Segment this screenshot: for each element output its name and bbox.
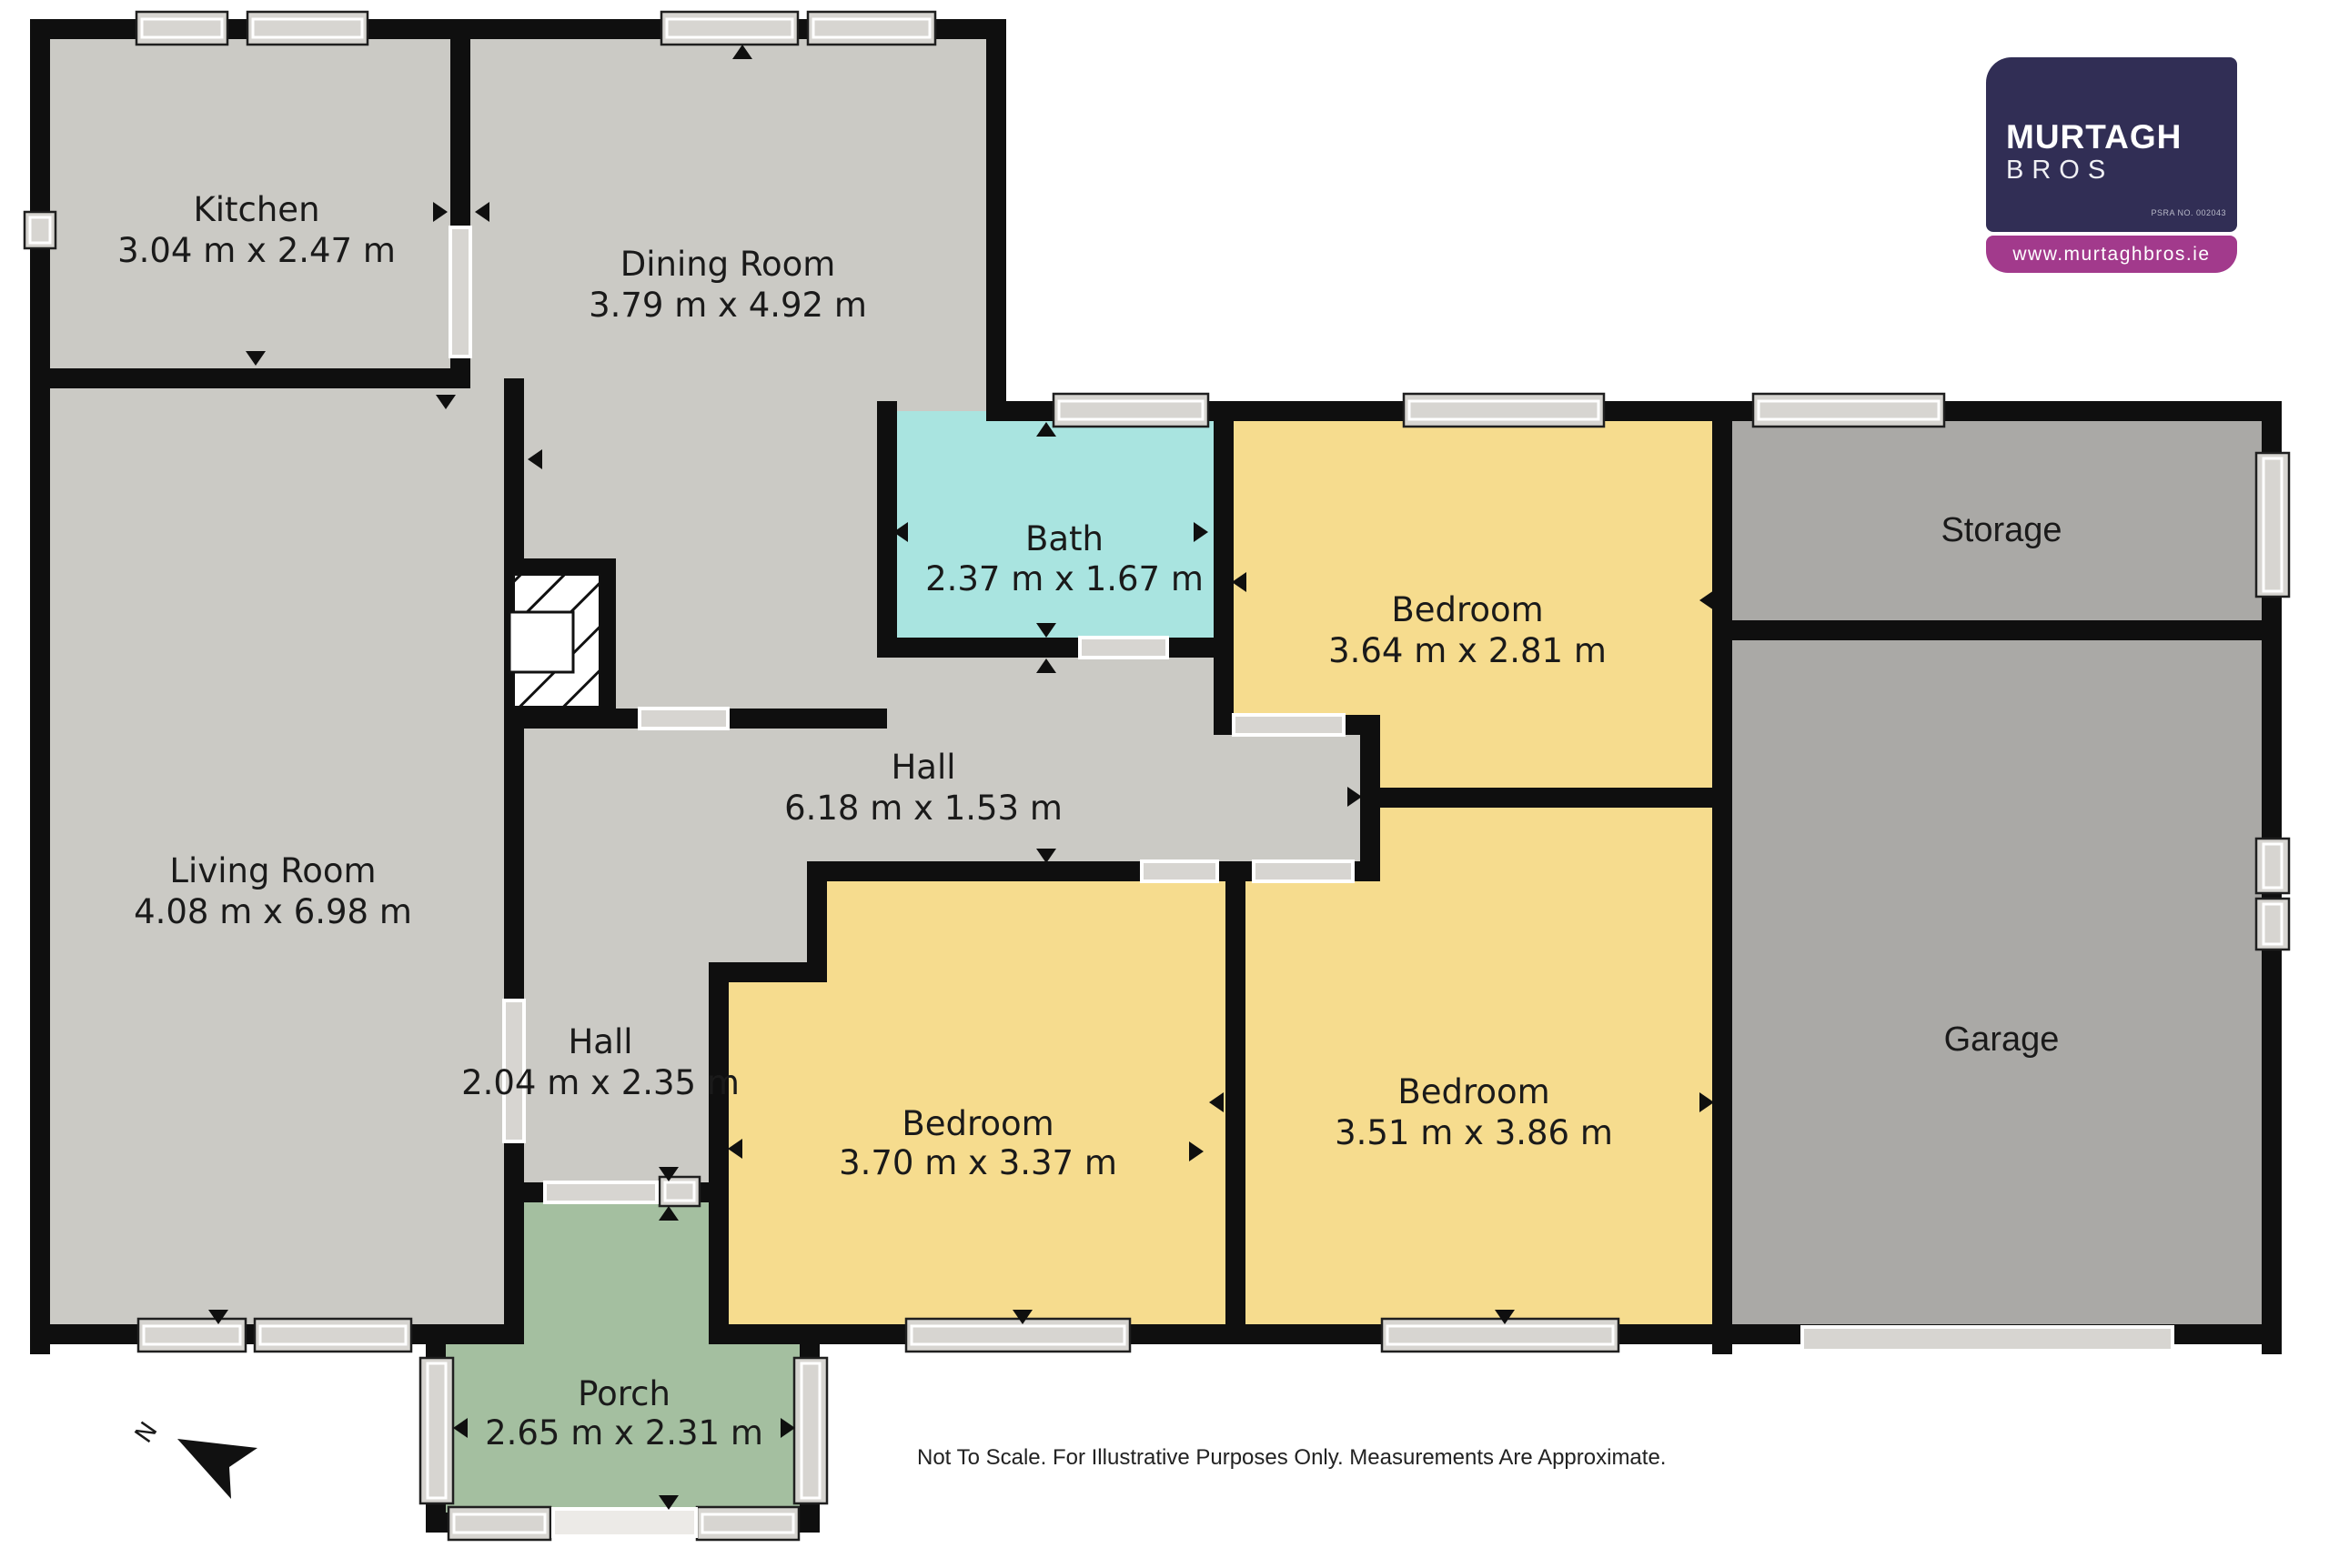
bedroom-middle-label: Bedroom	[902, 1104, 1054, 1143]
agency-logo: MURTAGH BROS PSRA NO. 002043 www.murtagh…	[1986, 57, 2237, 273]
hall-front-room	[514, 729, 719, 1192]
living-dims: 4.08 m x 6.98 m	[134, 892, 412, 931]
window	[136, 12, 227, 45]
window	[247, 12, 368, 45]
door-opening	[1254, 861, 1353, 881]
window	[2256, 899, 2289, 950]
storage-label: Storage	[1941, 511, 2062, 549]
bedroom-middle-dims: 3.70 m x 3.37 m	[839, 1143, 1117, 1182]
window	[449, 1507, 550, 1540]
window	[1382, 1319, 1618, 1352]
bath-dims: 2.37 m x 1.67 m	[925, 559, 1204, 598]
bath-label: Bath	[1025, 519, 1104, 558]
dining-label: Dining Room	[620, 245, 836, 284]
porch-door	[553, 1509, 696, 1536]
garage-door	[1802, 1327, 2173, 1351]
kitchen-label: Kitchen	[193, 190, 319, 229]
front-door	[545, 1182, 657, 1202]
bedroom-top-label: Bedroom	[1391, 590, 1543, 629]
window	[697, 1507, 799, 1540]
logo-name-line2: BROS	[1986, 154, 2237, 185]
door-opening	[1234, 715, 1344, 735]
hall-front-label: Hall	[568, 1022, 632, 1061]
logo-navy-panel: MURTAGH BROS PSRA NO. 002043	[1986, 57, 2237, 232]
door-opening	[1080, 638, 1167, 658]
door-opening	[640, 709, 728, 729]
bedroom-top-dims: 3.64 m x 2.81 m	[1328, 631, 1607, 670]
hall-main-label: Hall	[891, 748, 955, 787]
garage-room	[1722, 630, 2272, 1334]
north-label: N	[130, 1417, 164, 1448]
window	[808, 12, 935, 45]
window	[1404, 394, 1604, 427]
window	[2256, 453, 2289, 597]
porch-opening	[524, 1324, 709, 1344]
window	[255, 1319, 411, 1352]
bedroom-right-room	[1235, 808, 1722, 1334]
logo-psra-number: PSRA NO. 002043	[1986, 185, 2237, 217]
hall-front-dims: 2.04 m x 2.35 m	[461, 1063, 740, 1102]
logo-website-bar: www.murtaghbros.ie	[1986, 236, 2237, 273]
bedroom-right-label: Bedroom	[1397, 1072, 1549, 1111]
floorplan-page: Kitchen 3.04 m x 2.47 m Dining Room 3.79…	[0, 0, 2329, 1568]
dining-dims: 3.79 m x 4.92 m	[589, 286, 867, 325]
window	[1054, 394, 1208, 427]
porch-neck	[524, 1202, 709, 1344]
hall-main-dims: 6.18 m x 1.53 m	[784, 789, 1063, 828]
porch-dims: 2.65 m x 2.31 m	[485, 1413, 763, 1452]
north-arrow: N	[130, 1417, 257, 1499]
window	[906, 1319, 1130, 1352]
bedroom-right-dims: 3.51 m x 3.86 m	[1335, 1113, 1613, 1152]
door-opening	[1142, 861, 1217, 881]
logo-name-line1: MURTAGH	[1986, 57, 2237, 154]
garage-label: Garage	[1944, 1020, 2060, 1059]
floor-plan: Kitchen 3.04 m x 2.47 m Dining Room 3.79…	[0, 0, 2329, 1568]
door-opening	[450, 227, 470, 357]
window	[661, 12, 798, 45]
window	[794, 1358, 827, 1503]
window	[138, 1319, 246, 1352]
window	[1753, 394, 1944, 427]
kitchen-dims: 3.04 m x 2.47 m	[117, 231, 396, 270]
living-label: Living Room	[169, 851, 376, 890]
porch-label: Porch	[578, 1374, 670, 1413]
disclaimer-text: Not To Scale. For Illustrative Purposes …	[917, 1445, 1666, 1470]
window	[420, 1358, 453, 1503]
fireplace	[509, 575, 600, 707]
window	[2256, 839, 2289, 893]
